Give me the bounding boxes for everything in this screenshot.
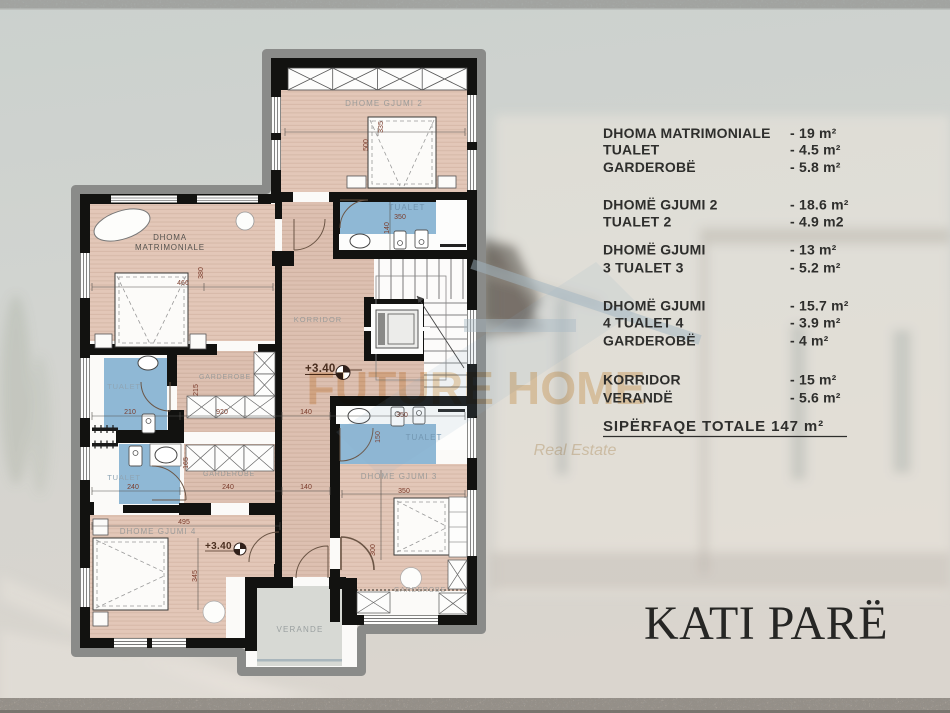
svg-text:335: 335 [378, 121, 385, 133]
svg-text:KORRIDOR: KORRIDOR [294, 315, 342, 324]
svg-text:DHOMA: DHOMA [153, 233, 187, 242]
svg-text:350: 350 [398, 488, 410, 495]
svg-text:Real Estate: Real Estate [534, 442, 617, 459]
svg-text:500: 500 [363, 139, 370, 151]
svg-text:- 5.8 m²: - 5.8 m² [790, 159, 841, 175]
svg-text:VERANDE: VERANDE [276, 625, 323, 634]
svg-text:240: 240 [222, 484, 234, 491]
svg-text:345: 345 [192, 570, 199, 582]
svg-text:DHOMA MATRIMONIALE: DHOMA MATRIMONIALE [603, 125, 771, 141]
svg-text:240: 240 [127, 484, 139, 491]
svg-text:VERANDË: VERANDË [603, 390, 673, 406]
svg-text:DHOMË GJUMI 2: DHOMË GJUMI 2 [603, 197, 718, 213]
svg-text:DHOMË GJUMI: DHOMË GJUMI [603, 298, 706, 314]
svg-text:215: 215 [193, 384, 200, 396]
svg-text:300: 300 [370, 544, 377, 556]
svg-text:920: 920 [216, 409, 228, 416]
svg-text:- 15.7 m²: - 15.7 m² [790, 298, 849, 314]
svg-text:466: 466 [177, 280, 189, 287]
svg-text:165: 165 [183, 457, 190, 469]
svg-text:- 4.9 m2: - 4.9 m2 [790, 214, 844, 230]
svg-text:MATRIMONIALE: MATRIMONIALE [135, 243, 205, 252]
svg-text:380: 380 [198, 267, 205, 279]
svg-text:140: 140 [384, 222, 391, 234]
svg-text:- 13 m²: - 13 m² [790, 242, 837, 258]
svg-text:- 4 m²: - 4 m² [790, 333, 829, 349]
svg-text:SIPËRFAQE TOTALE 147 m²: SIPËRFAQE TOTALE 147 m² [603, 418, 824, 435]
svg-text:- 3.9 m²: - 3.9 m² [790, 315, 841, 331]
svg-text:- 5.6 m²: - 5.6 m² [790, 390, 841, 406]
svg-text:- 5.2 m²: - 5.2 m² [790, 260, 841, 276]
svg-text:FUTURE HOME: FUTURE HOME [307, 362, 646, 414]
svg-text:TUALET: TUALET [107, 382, 141, 391]
svg-text:DHOME GJUMI 4: DHOME GJUMI 4 [120, 527, 197, 536]
svg-text:4 TUALET 4: 4 TUALET 4 [603, 315, 684, 331]
svg-text:TUALET: TUALET [389, 203, 426, 212]
svg-text:GARDEROBË: GARDEROBË [603, 159, 696, 175]
svg-text:GARDEROBË: GARDEROBË [603, 333, 696, 349]
svg-text:495: 495 [178, 519, 190, 526]
svg-text:KATI PARË: KATI PARË [644, 597, 888, 650]
svg-text:GARDEROBE: GARDEROBE [203, 471, 255, 478]
svg-text:+3.40: +3.40 [205, 541, 232, 552]
svg-text:- 15 m²: - 15 m² [790, 372, 837, 388]
svg-text:- 4.5 m²: - 4.5 m² [790, 142, 841, 158]
svg-text:GARDEROBE: GARDEROBE [199, 374, 251, 381]
svg-text:DHOMË GJUMI: DHOMË GJUMI [603, 242, 706, 258]
svg-text:GARDEROBE: GARDEROBE [394, 587, 446, 594]
svg-text:TUALET: TUALET [107, 473, 141, 482]
svg-text:210: 210 [124, 409, 136, 416]
svg-text:3 TUALET 3: 3 TUALET 3 [603, 260, 684, 276]
svg-text:350: 350 [394, 214, 406, 221]
svg-text:DHOME GJUMI 3: DHOME GJUMI 3 [361, 472, 438, 481]
svg-text:KORRIDOR: KORRIDOR [603, 372, 681, 388]
svg-text:140: 140 [300, 484, 312, 491]
svg-text:DHOME GJUMI 2: DHOME GJUMI 2 [345, 99, 423, 108]
svg-text:- 19 m²: - 19 m² [790, 125, 837, 141]
svg-text:TUALET: TUALET [603, 142, 660, 158]
svg-text:- 18.6 m²: - 18.6 m² [790, 197, 849, 213]
svg-text:TUALET 2: TUALET 2 [603, 214, 672, 230]
